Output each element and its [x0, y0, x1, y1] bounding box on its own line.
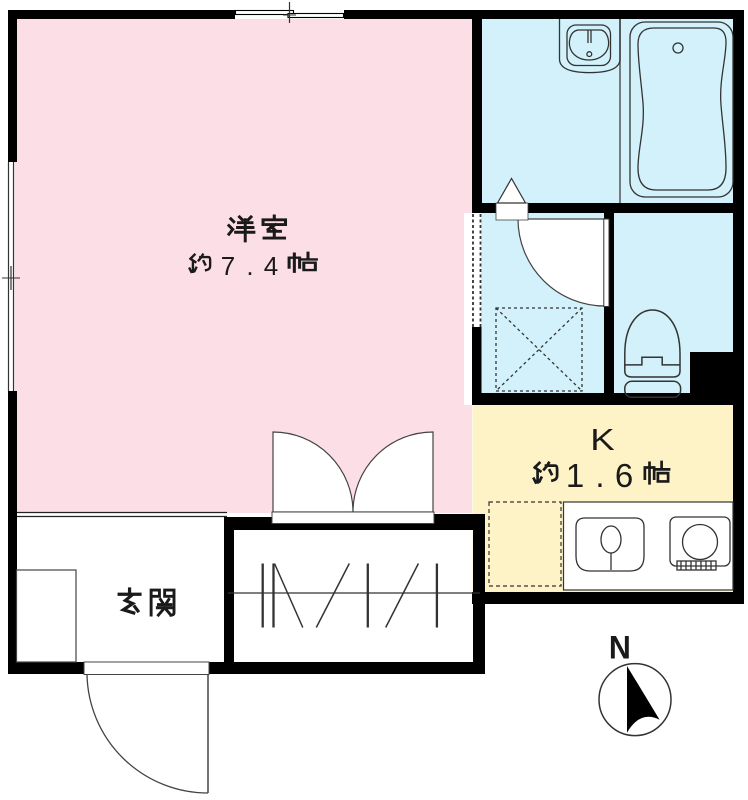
svg-text:.: .: [595, 457, 604, 494]
svg-text:6: 6: [615, 457, 633, 494]
svg-text:.: .: [246, 251, 253, 281]
svg-text:1: 1: [566, 457, 584, 494]
svg-text:K: K: [590, 423, 615, 458]
svg-text:4: 4: [264, 251, 278, 281]
svg-text:7: 7: [221, 251, 235, 281]
svg-text:N: N: [609, 630, 631, 666]
